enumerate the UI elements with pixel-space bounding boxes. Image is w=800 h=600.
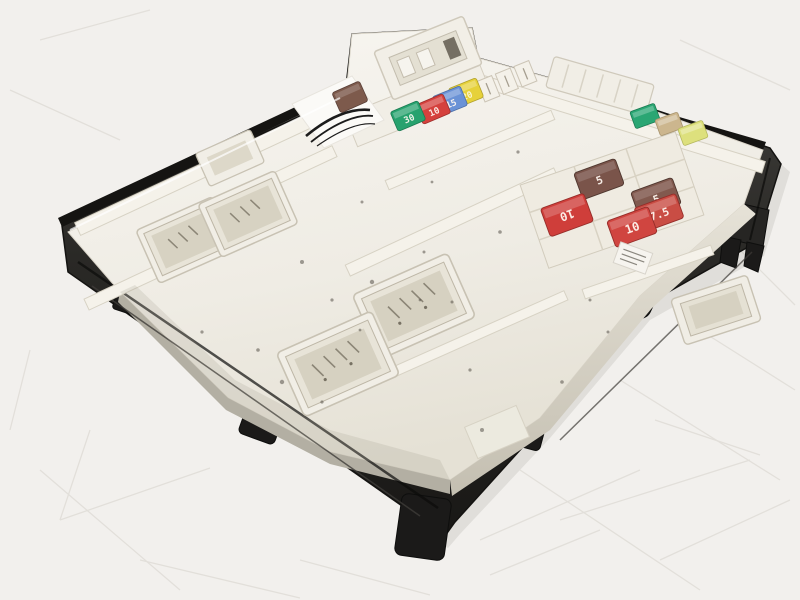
fusebox-photo: 20 15 10 30	[0, 0, 800, 600]
photo-canvas: 20 15 10 30	[0, 0, 800, 600]
